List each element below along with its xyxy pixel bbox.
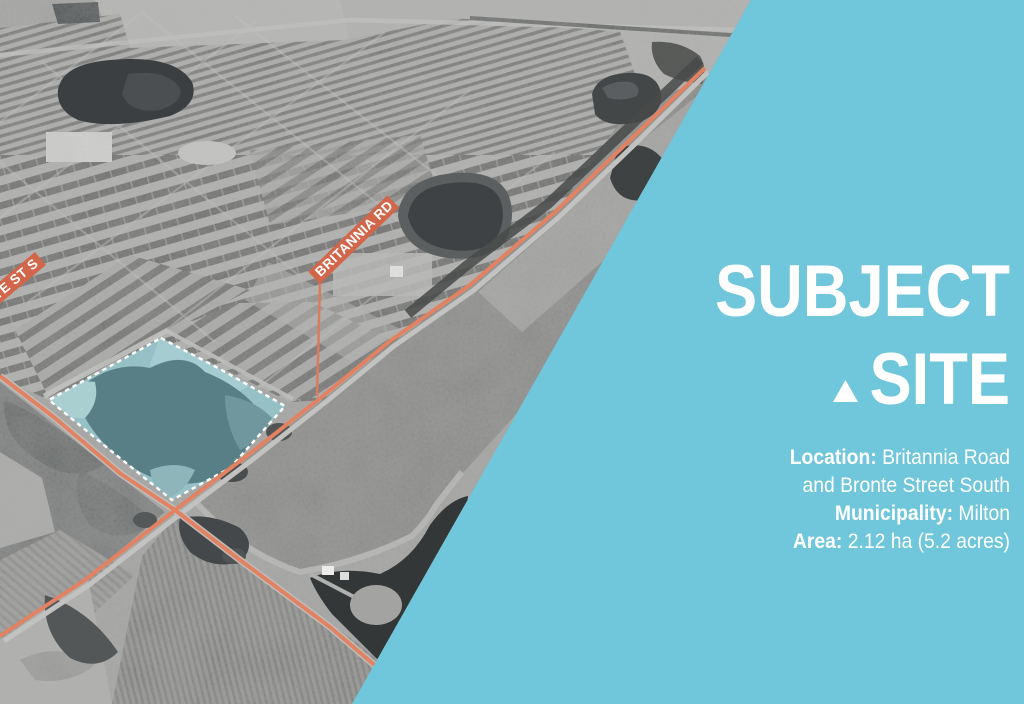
svg-text:SUBJECT: SUBJECT bbox=[715, 251, 1010, 332]
svg-text:Area: 2.12 ha (5.2 acres): Area: 2.12 ha (5.2 acres) bbox=[793, 529, 1010, 553]
svg-text:and Bronte Street South: and Bronte Street South bbox=[803, 473, 1010, 497]
svg-text:Location: Britannia Road: Location: Britannia Road bbox=[790, 445, 1010, 469]
svg-text:Municipality: Milton: Municipality: Milton bbox=[835, 501, 1010, 525]
svg-text:SITE: SITE bbox=[870, 339, 1010, 420]
